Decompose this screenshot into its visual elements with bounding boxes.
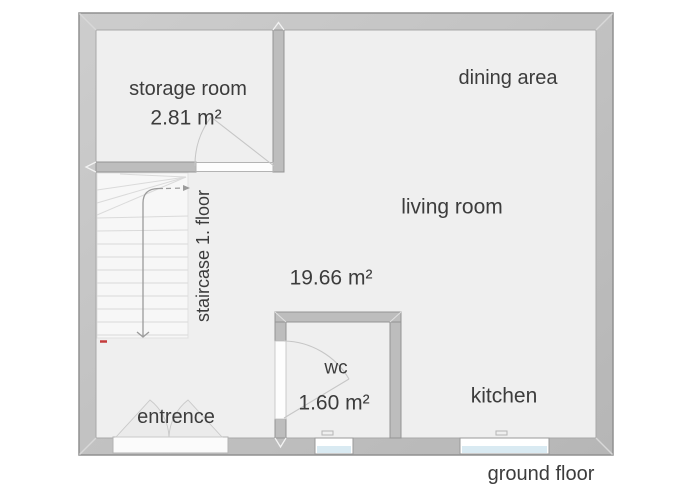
wc-label: wc bbox=[324, 359, 347, 378]
wc-left-wall-upper bbox=[275, 322, 286, 341]
wc-right-wall bbox=[390, 322, 401, 438]
floor-title: ground floor bbox=[488, 464, 595, 484]
storage-room-area: 2.81 m² bbox=[150, 108, 221, 129]
wc-door-opening bbox=[275, 341, 286, 419]
storage-door-threshold bbox=[196, 163, 273, 172]
living-room-area: 19.66 m² bbox=[290, 268, 373, 289]
wc-left-wall-lower bbox=[275, 419, 286, 438]
wc-top-wall bbox=[275, 312, 401, 322]
living-room-label: living room bbox=[401, 197, 503, 218]
entrance-label: entrence bbox=[137, 407, 215, 427]
storage-bottom-wall bbox=[96, 162, 196, 172]
storage-right-wall bbox=[273, 30, 284, 172]
floorplan-drawing bbox=[0, 0, 690, 500]
storage-room-label: storage room bbox=[129, 79, 247, 99]
wc-area: 1.60 m² bbox=[298, 393, 369, 414]
dining-area-label: dining area bbox=[459, 68, 558, 88]
staircase-label: staircase 1. floor bbox=[194, 190, 212, 322]
floorplan-viewer: storage room 2.81 m² dining area living … bbox=[0, 0, 690, 500]
entrance-threshold bbox=[113, 437, 228, 453]
kitchen-label: kitchen bbox=[471, 386, 538, 407]
